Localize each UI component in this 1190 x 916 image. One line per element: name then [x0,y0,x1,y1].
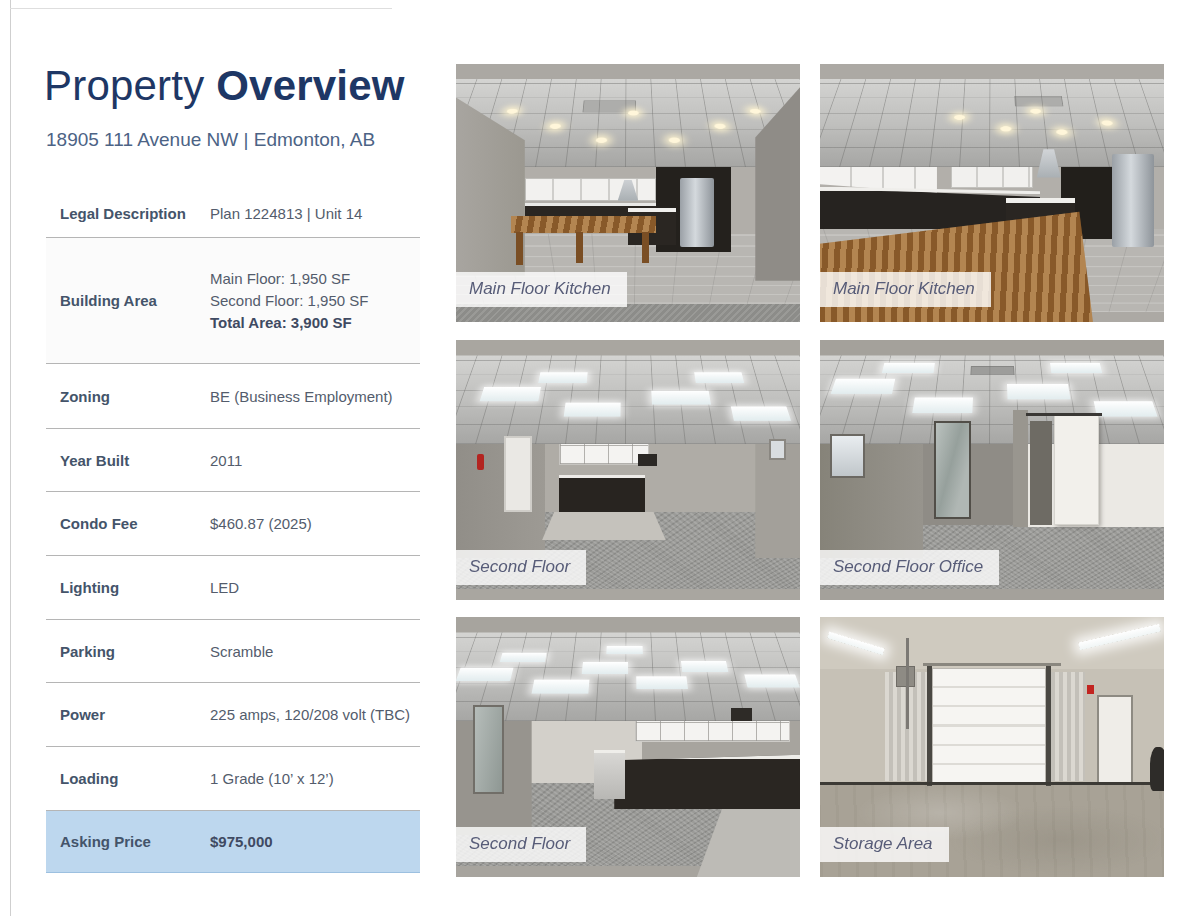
row-value: 225 amps, 120/208 volt (TBC) [210,706,420,723]
building-area-line-2: Second Floor: 1,950 SF [210,290,420,312]
building-area-total: Total Area: 3,900 SF [210,312,420,334]
door [504,436,532,511]
lower-cabinet-run [614,755,800,810]
door-header-bar [923,663,1061,666]
office-chair [1150,747,1164,791]
row-value: BE (Business Employment) [210,388,420,405]
table-row-condo-fee: Condo Fee $460.87 (2025) [46,492,420,556]
row-label: Parking [46,643,210,660]
property-details-table: Legal Description Plan 1224813 | Unit 14… [46,190,420,873]
window [769,439,786,460]
photo-second-floor-2: Second Floor [456,617,800,877]
table-row-loading: Loading 1 Grade (10’ x 12’) [46,747,420,811]
shelf-item [731,708,752,721]
table-row-power: Power 225 amps, 120/208 volt (TBC) [46,683,420,747]
photo-main-floor-kitchen-1: Main Floor Kitchen [456,64,800,322]
table-row-asking-price: Asking Price $975,000 [46,811,420,873]
kitchenette-cabinets [559,475,645,511]
row-value: Main Floor: 1,950 SF Second Floor: 1,950… [210,268,420,334]
page-title: Property Overview [44,62,405,110]
photo-storage-area: Storage Area [820,617,1164,877]
page-edge-left [10,0,11,916]
row-label: Legal Description [46,205,210,222]
pillar [1013,410,1028,527]
page-title-regular: Property [44,62,216,109]
photo-caption: Storage Area [820,827,949,862]
man-door [1097,695,1133,785]
photo-caption: Second Floor [456,827,586,862]
table-row-lighting: Lighting LED [46,556,420,620]
row-value: Scramble [210,643,420,660]
fire-extinguisher [477,454,485,470]
conduit-line [906,638,909,729]
table-row-zoning: Zoning BE (Business Employment) [46,364,420,429]
table-row-legal-description: Legal Description Plan 1224813 | Unit 14 [46,190,420,238]
page-edge-top [10,8,392,9]
row-label: Power [46,706,210,723]
page-title-bold: Overview [216,62,404,109]
upper-wall [820,617,1164,669]
table-leg [516,232,523,266]
glass-pane [934,421,972,520]
row-value: $975,000 [210,833,420,850]
photo-caption: Main Floor Kitchen [456,272,627,307]
building-area-line-1: Main Floor: 1,950 SF [210,268,420,290]
table-leg [576,232,583,263]
printer-stand [594,750,625,799]
row-label: Building Area [46,292,210,309]
photo-caption: Main Floor Kitchen [820,272,991,307]
barn-door [1054,415,1099,524]
baseboard [820,782,1164,785]
drop-ceiling [820,355,1164,444]
photo-second-floor-office: Second Floor Office [820,340,1164,600]
row-label: Zoning [46,388,210,405]
row-value: 1 Grade (10’ x 12’) [210,770,420,787]
table-row-year-built: Year Built 2011 [46,429,420,492]
table-leg [642,232,649,263]
metal-panel-right [1047,672,1085,781]
photo-main-floor-kitchen-2: Main Floor Kitchen [820,64,1164,322]
overhead-garage-door [932,668,1045,784]
photo-second-floor-1: Second Floor [456,340,800,600]
refrigerator [1112,154,1153,247]
window [830,434,864,478]
row-value: 2011 [210,452,420,469]
microwave [638,454,657,466]
barn-door-rail [1026,413,1102,417]
row-label: Year Built [46,452,210,469]
table-row-building-area: Building Area Main Floor: 1,950 SF Secon… [46,238,420,364]
ceiling-vent [970,366,1014,375]
doorway-opening [1030,421,1052,525]
tile-patch [542,512,666,541]
photo-caption: Second Floor [456,550,586,585]
ceiling-vent [1014,96,1063,107]
table-row-parking: Parking Scramble [46,620,420,683]
refrigerator [680,178,714,248]
photo-caption: Second Floor Office [820,550,999,585]
row-label: Loading [46,770,210,787]
row-value: $460.87 (2025) [210,515,420,532]
ceiling-vent [582,100,635,112]
property-address: 18905 111 Avenue NW | Edmonton, AB [46,129,375,151]
glass-door [473,705,504,793]
row-label: Condo Fee [46,515,210,532]
fire-alarm [1087,685,1095,694]
drop-ceiling [456,355,800,444]
row-value: Plan 1224813 | Unit 14 [210,205,420,222]
row-label: Asking Price [46,833,210,850]
row-value: LED [210,579,420,596]
row-label: Lighting [46,579,210,596]
overhead-door-frame-right [1046,666,1051,786]
property-overview-page: { "page": { "title_regular": "Property "… [0,0,1190,916]
wood-table [511,216,655,233]
